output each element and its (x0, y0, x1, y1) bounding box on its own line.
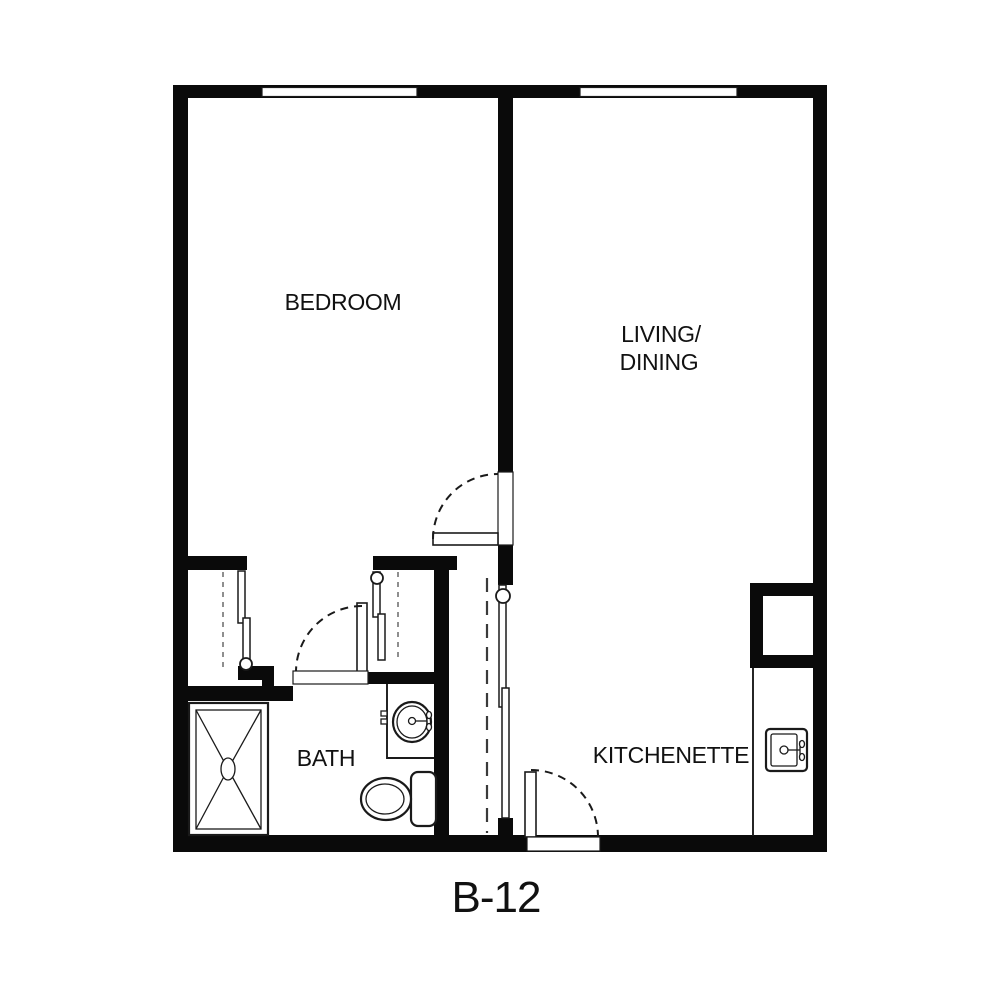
bedroom-door-swing-arc (433, 474, 498, 539)
wall-bedroom-living-stub (498, 545, 513, 585)
kitchenette-alcove-interior (763, 596, 813, 655)
bedroom-door-opening (498, 472, 513, 545)
sliding-door-panel-2 (502, 688, 509, 818)
closet-left-door-panel-1 (238, 571, 245, 623)
wall-bottom (173, 835, 827, 852)
shower (189, 703, 268, 835)
wall-left (173, 85, 188, 852)
kitchenette-counter (753, 668, 807, 836)
bath-door-threshold (293, 671, 368, 684)
toilet-tank (411, 772, 436, 826)
bath-vanity (381, 684, 434, 758)
bath-door-swing-arc (296, 606, 362, 672)
wall-slide-bottom-stub (498, 818, 513, 837)
closet-right-door-knob (371, 572, 383, 584)
closet-right-door-panel-2 (378, 614, 385, 660)
sliding-door-knob (496, 589, 510, 603)
bedroom-door-leaf (433, 533, 498, 545)
bath-label: BATH (297, 745, 355, 771)
wall-bath-top-left (188, 686, 293, 701)
closet-left-door-panel-2 (243, 618, 250, 664)
wall-bath-top-right (367, 672, 434, 684)
living-dining-label-line2: DINING (620, 349, 699, 375)
entry-door-threshold (527, 837, 600, 851)
toilet (361, 772, 436, 826)
kitchenette-label: KITCHENETTE (593, 742, 749, 768)
wall-bedroom-bottom-left (188, 556, 247, 570)
floor-plan-page: BEDROOM LIVING/ DINING BATH KITCHENETTE … (0, 0, 1000, 1000)
closet-left-door-knob (240, 658, 252, 670)
bath-door-leaf (357, 603, 367, 672)
shower-drain (221, 758, 235, 780)
floor-plan-drawing: BEDROOM LIVING/ DINING BATH KITCHENETTE … (0, 0, 1000, 1000)
kitchen-sink-drain (780, 746, 788, 754)
entry-door-swing-arc (531, 770, 598, 837)
entry-door-leaf (525, 772, 536, 837)
wall-bedroom-bottom-right (373, 556, 457, 570)
bedroom-label: BEDROOM (285, 289, 402, 315)
window-living (580, 88, 737, 97)
window-bedroom (262, 88, 417, 97)
wall-right (813, 85, 827, 852)
wall-bedroom-living (498, 98, 513, 472)
unit-title: B-12 (452, 873, 541, 922)
living-dining-label-line1: LIVING/ (621, 321, 702, 347)
